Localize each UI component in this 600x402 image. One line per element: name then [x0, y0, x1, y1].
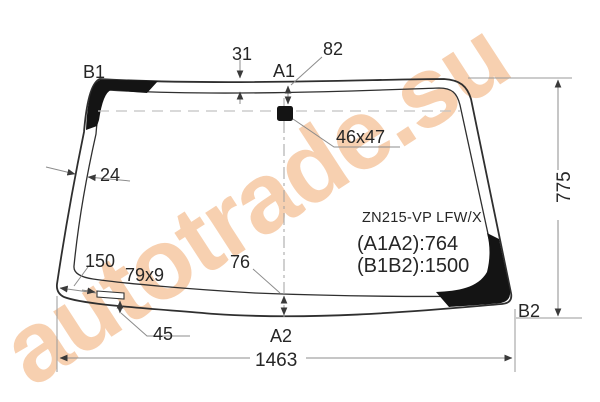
label-b2: B2: [518, 301, 540, 321]
dim-top-band: 31: [232, 44, 252, 64]
bottom-button-pad: [97, 291, 124, 299]
label-a1: A1: [273, 61, 295, 81]
dim-side-band: 24: [100, 165, 120, 185]
extension-lines: [57, 78, 582, 372]
label-b1: B1: [83, 62, 105, 82]
label-a2: A2: [270, 326, 292, 346]
mirror-mount-square: [277, 106, 293, 121]
dim-mirror-pad-size: 46x47: [336, 127, 385, 147]
part-dim-a1a2: (A1A2):764: [357, 233, 458, 255]
diagram-canvas: B1 31 A1 82 46x47 24 150 79x9 76 45 A2 1…: [0, 0, 600, 402]
part-dim-b1b2: (B1B2):1500: [357, 255, 469, 277]
dim-bottom-left-offset: 150: [85, 251, 115, 271]
windshield-diagram: autotrade.su: [0, 0, 600, 402]
part-info: ZN215-VP LFW/X (A1A2):764 (B1B2):1500: [357, 210, 482, 277]
dimension-lines: [46, 57, 558, 358]
frit-corner-top-left: [86, 80, 158, 130]
dim-bottom-band: 76: [230, 252, 250, 272]
dim-height: 775: [554, 171, 575, 203]
dim-mirror-offset: 82: [323, 39, 343, 59]
dim-button-size: 79x9: [125, 265, 164, 285]
part-code: ZN215-VP LFW/X: [362, 210, 482, 226]
dim-button-edge-gap: 45: [153, 324, 173, 344]
dim-width: 1463: [255, 350, 297, 371]
